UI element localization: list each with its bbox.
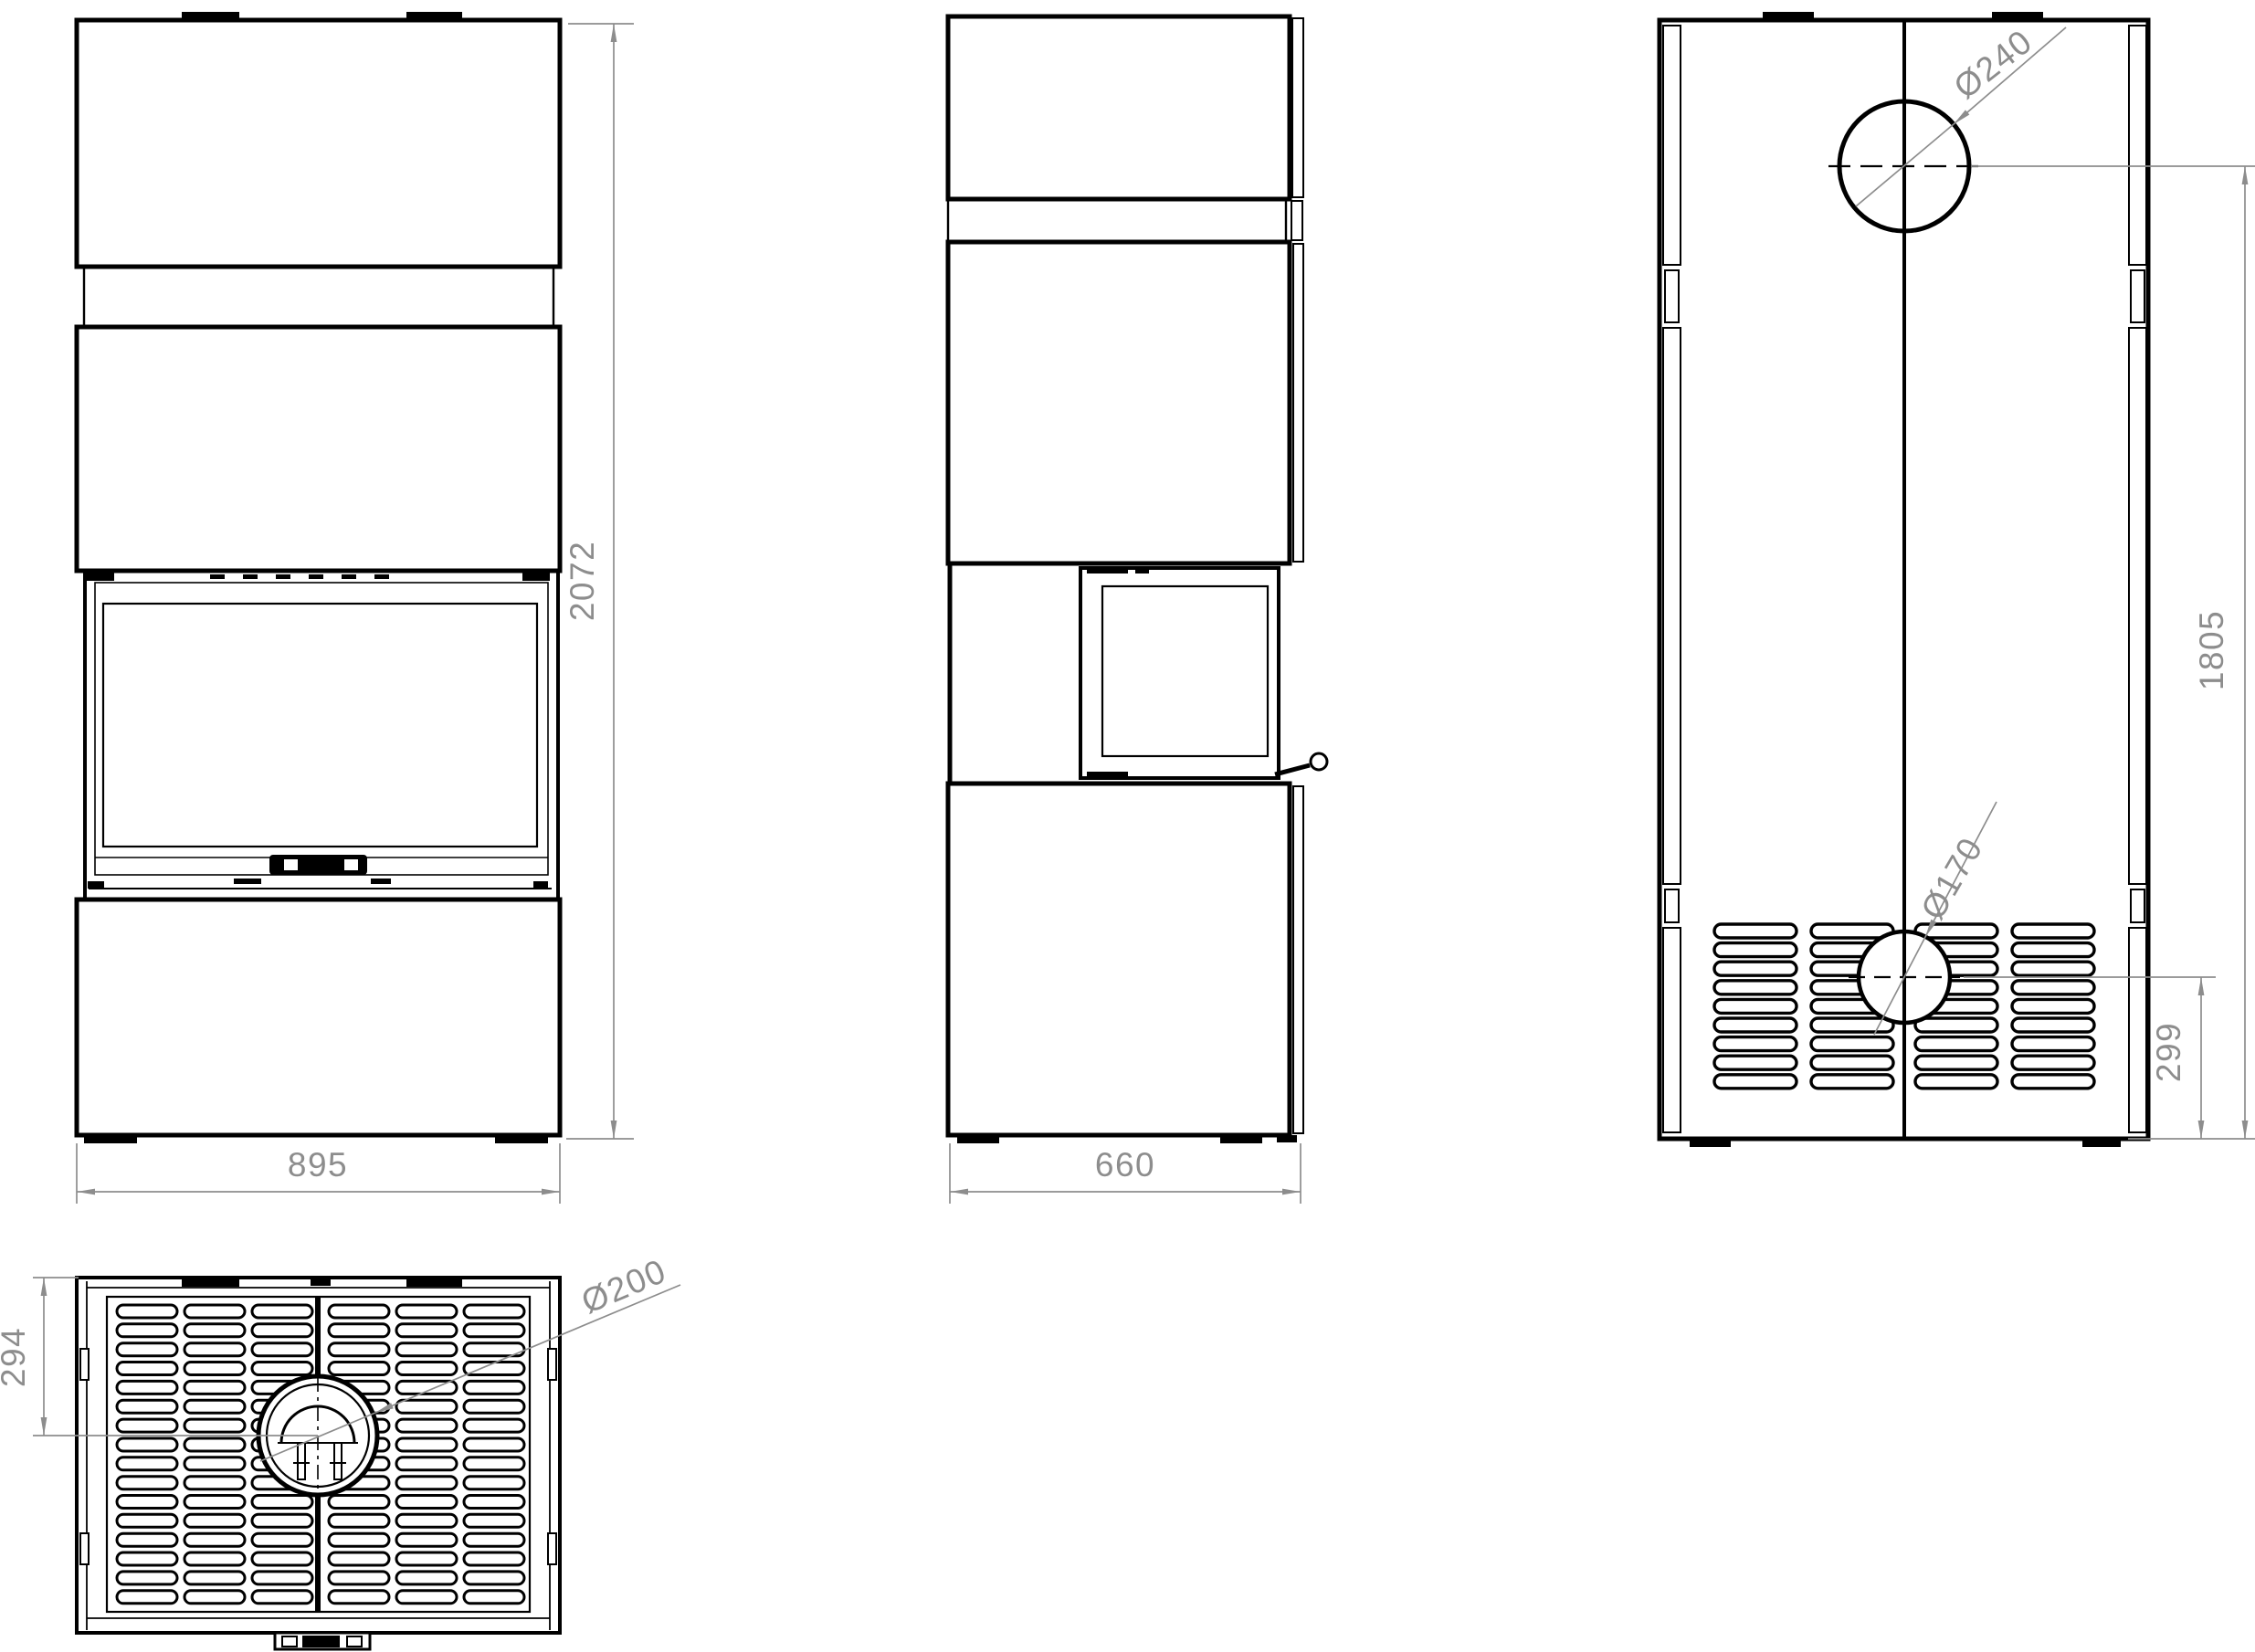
dim-label-side-depth: 660 bbox=[1095, 1146, 1155, 1184]
vent-slot bbox=[117, 1514, 177, 1527]
vent-slot bbox=[1811, 1056, 1893, 1069]
front-base bbox=[77, 900, 560, 1135]
vent-slot bbox=[2012, 924, 2094, 938]
rear-top-tab-right bbox=[1992, 12, 2043, 20]
vent-slot bbox=[252, 1552, 312, 1565]
front-glass-door bbox=[85, 571, 558, 900]
front-band bbox=[84, 267, 553, 327]
vent-slot bbox=[2012, 1018, 2094, 1032]
vent-slot bbox=[1915, 1018, 1997, 1032]
vent-slot bbox=[1915, 1075, 1997, 1089]
vent-slot bbox=[117, 1552, 177, 1565]
vent-slot bbox=[464, 1477, 524, 1489]
vent-slot bbox=[184, 1572, 245, 1584]
vent-slot bbox=[1714, 1018, 1797, 1032]
vent-slot bbox=[396, 1572, 457, 1584]
vent-slot bbox=[184, 1496, 245, 1509]
vent-slot bbox=[396, 1363, 457, 1375]
front-foot-right bbox=[495, 1135, 548, 1143]
front-foot-left bbox=[84, 1135, 137, 1143]
vent-slot bbox=[252, 1514, 312, 1527]
vent-slot bbox=[1714, 999, 1797, 1013]
vent-slot bbox=[1811, 1075, 1893, 1089]
vent-slot bbox=[252, 1343, 312, 1356]
vent-slot bbox=[2012, 943, 2094, 957]
vent-slot bbox=[117, 1496, 177, 1509]
vent-slot bbox=[329, 1496, 389, 1509]
vent-slot bbox=[184, 1324, 245, 1337]
vent-slot bbox=[117, 1477, 177, 1489]
stove-technical-drawing: 895 2072 660 Ø240 1805 bbox=[0, 0, 2255, 1652]
vent-slot bbox=[464, 1419, 524, 1432]
vent-slot bbox=[1714, 924, 1797, 938]
vent-slot bbox=[396, 1457, 457, 1470]
dim-front-width: 895 bbox=[77, 1143, 560, 1204]
top-tab-left bbox=[182, 1279, 239, 1287]
vent-slot bbox=[1811, 1037, 1893, 1051]
vent-slot bbox=[396, 1400, 457, 1413]
top-tab-center bbox=[311, 1279, 331, 1286]
vent-slot bbox=[117, 1419, 177, 1432]
vent-slot bbox=[117, 1438, 177, 1451]
vent-slot bbox=[464, 1457, 524, 1470]
vent-slot bbox=[252, 1591, 312, 1604]
dim-label-intake-diameter: Ø170 bbox=[1913, 831, 1990, 926]
vent-slot bbox=[2012, 1037, 2094, 1051]
vent-slot bbox=[329, 1363, 389, 1375]
side-rear-strip-4 bbox=[1293, 786, 1303, 1133]
vent-slot bbox=[396, 1514, 457, 1527]
top-tab-right bbox=[406, 1279, 462, 1287]
vent-slot bbox=[117, 1591, 177, 1604]
vent-slot bbox=[252, 1305, 312, 1318]
vent-slot bbox=[184, 1591, 245, 1604]
vent-slot bbox=[117, 1381, 177, 1394]
front-top-tab-right bbox=[406, 12, 462, 20]
vent-slot bbox=[184, 1477, 245, 1489]
side-rear-strip-3 bbox=[1293, 244, 1303, 562]
front-view bbox=[77, 12, 560, 1143]
side-foot-right bbox=[1220, 1135, 1262, 1143]
dim-label-intake-height: 299 bbox=[2150, 1022, 2187, 1082]
dim-label-total-height: 2072 bbox=[564, 541, 601, 621]
vent-slot bbox=[184, 1305, 245, 1318]
side-rear-strip-1 bbox=[1292, 18, 1303, 197]
vent-slot bbox=[184, 1457, 245, 1470]
vent-slot bbox=[464, 1533, 524, 1546]
vent-slot bbox=[117, 1400, 177, 1413]
vent-slot bbox=[396, 1552, 457, 1565]
vent-slot bbox=[396, 1533, 457, 1546]
vent-slot bbox=[2012, 1075, 2094, 1089]
vent-slot bbox=[464, 1572, 524, 1584]
vent-slot bbox=[329, 1324, 389, 1337]
vent-slot bbox=[329, 1305, 389, 1318]
vent-slot bbox=[329, 1533, 389, 1546]
rear-foot-left bbox=[1690, 1139, 1731, 1147]
side-middle-panel bbox=[948, 242, 1290, 563]
dim-label-flue-height: 1805 bbox=[2193, 610, 2230, 690]
vent-slot bbox=[117, 1363, 177, 1375]
vent-slot bbox=[464, 1496, 524, 1509]
vent-slot bbox=[396, 1591, 457, 1604]
vent-slot bbox=[252, 1363, 312, 1375]
side-foot-left bbox=[957, 1135, 999, 1143]
vent-slot bbox=[1714, 981, 1797, 994]
vent-slot bbox=[184, 1533, 245, 1546]
vent-slot bbox=[117, 1572, 177, 1584]
vent-slot bbox=[396, 1324, 457, 1337]
rear-top-tab-left bbox=[1763, 12, 1814, 20]
vent-slot bbox=[117, 1305, 177, 1318]
vent-slot bbox=[184, 1514, 245, 1527]
side-rear-strip-2 bbox=[1291, 201, 1302, 240]
top-front-latch bbox=[275, 1633, 370, 1649]
vent-slot bbox=[329, 1591, 389, 1604]
front-top-cap bbox=[77, 20, 560, 267]
dim-label-top-offset: 294 bbox=[0, 1327, 32, 1387]
vent-slot bbox=[1714, 1075, 1797, 1089]
vent-slot bbox=[117, 1324, 177, 1337]
vent-slot bbox=[252, 1496, 312, 1509]
vent-slot bbox=[184, 1343, 245, 1356]
vent-slot bbox=[464, 1552, 524, 1565]
side-top-cap bbox=[948, 16, 1290, 199]
side-door-handle bbox=[1275, 753, 1327, 774]
front-middle-panel bbox=[77, 327, 560, 571]
vent-slot bbox=[396, 1305, 457, 1318]
vent-slot bbox=[329, 1514, 389, 1527]
dim-label-flue-diameter: Ø240 bbox=[1947, 22, 2039, 106]
vent-slot bbox=[329, 1343, 389, 1356]
vent-slot bbox=[1915, 1037, 1997, 1051]
vent-slot bbox=[184, 1419, 245, 1432]
vent-slot bbox=[464, 1363, 524, 1375]
vent-slot bbox=[396, 1477, 457, 1489]
side-base bbox=[948, 784, 1290, 1135]
vent-slot bbox=[464, 1400, 524, 1413]
vent-slot bbox=[117, 1457, 177, 1470]
front-top-tab-left bbox=[182, 12, 239, 20]
vent-slot bbox=[1714, 943, 1797, 957]
vent-slot bbox=[1714, 1037, 1797, 1051]
vent-slot bbox=[2012, 999, 2094, 1013]
vent-slot bbox=[184, 1363, 245, 1375]
vent-slot bbox=[2012, 981, 2094, 994]
vent-slot bbox=[1714, 1056, 1797, 1069]
dim-label-front-width: 895 bbox=[288, 1146, 348, 1184]
vent-slot bbox=[396, 1496, 457, 1509]
rear-foot-right bbox=[2082, 1139, 2121, 1147]
vent-slot bbox=[2012, 962, 2094, 975]
vent-slot bbox=[252, 1533, 312, 1546]
vent-slot bbox=[396, 1343, 457, 1356]
vent-slot bbox=[396, 1438, 457, 1451]
vent-slot bbox=[396, 1419, 457, 1432]
vent-slot bbox=[184, 1438, 245, 1451]
vent-slot bbox=[184, 1400, 245, 1413]
vent-slot bbox=[2012, 1056, 2094, 1069]
vent-slot bbox=[117, 1343, 177, 1356]
drawing-canvas: 895 2072 660 Ø240 1805 bbox=[0, 0, 2255, 1652]
side-glass-window bbox=[1080, 566, 1279, 779]
front-glass bbox=[103, 604, 537, 847]
vent-slot bbox=[464, 1514, 524, 1527]
side-foot-rear bbox=[1277, 1135, 1297, 1142]
dim-side-depth: 660 bbox=[950, 1143, 1301, 1204]
door-latch bbox=[88, 855, 548, 889]
top-view bbox=[77, 1278, 560, 1649]
vent-slot bbox=[464, 1305, 524, 1318]
dimensions: 895 2072 660 Ø240 1805 bbox=[0, 22, 2255, 1461]
vent-slot bbox=[464, 1324, 524, 1337]
side-band bbox=[948, 199, 1286, 242]
vent-slot bbox=[252, 1572, 312, 1584]
vent-slot bbox=[252, 1324, 312, 1337]
vent-slot bbox=[464, 1381, 524, 1394]
vent-slot bbox=[184, 1381, 245, 1394]
vent-slot bbox=[184, 1552, 245, 1565]
vent-slot bbox=[329, 1572, 389, 1584]
vent-slot bbox=[464, 1438, 524, 1451]
side-view bbox=[948, 16, 1327, 1143]
vent-slot bbox=[1714, 962, 1797, 975]
vent-slot bbox=[329, 1552, 389, 1565]
vent-slot bbox=[117, 1533, 177, 1546]
dim-total-height: 2072 bbox=[564, 24, 634, 1139]
dim-intake-height: 299 bbox=[1964, 977, 2255, 1139]
dim-label-top-flue-diameter: Ø200 bbox=[576, 1252, 672, 1321]
vent-slot bbox=[464, 1591, 524, 1604]
vent-slot bbox=[1915, 1056, 1997, 1069]
